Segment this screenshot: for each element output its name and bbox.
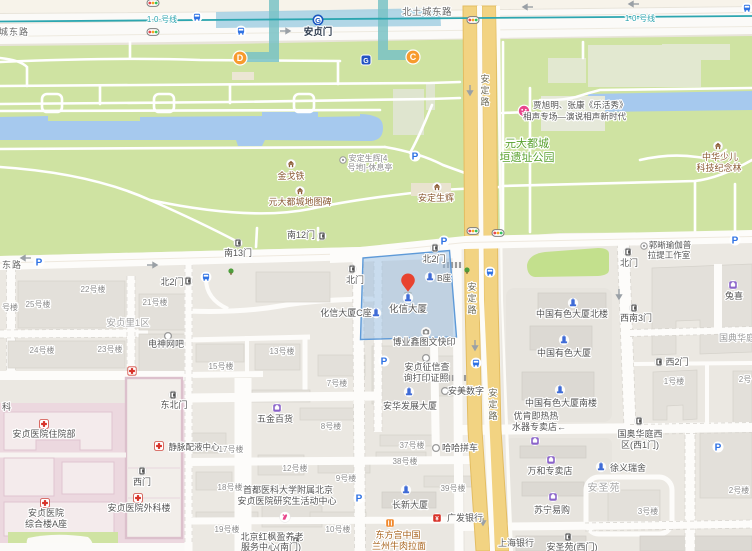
svg-text:北门: 北门 [346,274,364,285]
svg-text:安: 安 [488,387,497,398]
svg-text:化信大厦C座: 化信大厦C座 [320,307,372,318]
svg-text:安定生辉: 安定生辉 [418,192,454,203]
svg-text:¥: ¥ [435,516,439,523]
svg-text:中华少儿: 中华少儿 [702,151,738,162]
svg-text:万和专卖店: 万和专卖店 [527,465,572,476]
svg-text:22号楼: 22号楼 [81,284,106,294]
svg-text:25号楼: 25号楼 [26,299,51,309]
svg-text:国典华庭: 国典华庭 [719,332,752,343]
svg-text:博业鑫图文快印: 博业鑫图文快印 [392,336,455,347]
svg-text:37号楼: 37号楼 [400,440,425,450]
svg-text:G: G [315,16,321,25]
svg-text:化信大厦: 化信大厦 [389,303,428,315]
svg-text:15号楼: 15号楼 [209,361,234,371]
svg-text:电神网吧: 电神网吧 [148,338,184,349]
svg-text:相声专场—演说相声新时代: 相声专场—演说相声新时代 [523,111,627,122]
svg-text:北2门: 北2门 [160,276,183,287]
svg-text:定: 定 [480,85,489,96]
svg-text:B座: B座 [437,273,452,283]
svg-text:首都医科大学附属北京: 首都医科大学附属北京 [243,484,333,495]
svg-text:安: 安 [480,73,489,84]
svg-text:科技纪念林: 科技纪念林 [696,162,741,173]
svg-text:8号楼: 8号楼 [321,421,341,431]
svg-text:区(西1门): 区(西1门) [621,439,659,450]
svg-text:安圣苑: 安圣苑 [588,481,621,494]
svg-text:综合楼A座: 综合楼A座 [25,518,67,529]
svg-text:拉提工作室: 拉提工作室 [648,250,691,260]
svg-text:P: P [381,356,388,367]
svg-text:北门: 北门 [620,257,638,268]
svg-text:路: 路 [488,410,497,421]
svg-text:中国有色大厦北楼: 中国有色大厦北楼 [536,308,608,319]
svg-text:哈哈拼车: 哈哈拼车 [442,442,478,453]
svg-text:P: P [441,236,448,247]
svg-text:定: 定 [488,399,497,410]
svg-text:兰州牛肉拉面: 兰州牛肉拉面 [372,540,426,551]
svg-text:东路: 东路 [2,259,22,270]
svg-text:路: 路 [467,304,476,315]
svg-text:P: P [356,493,363,504]
svg-text:南12门: 南12门 [287,229,315,240]
svg-text:21号楼: 21号楼 [143,297,168,307]
svg-text:西南3门: 西南3门 [620,312,652,323]
svg-text:苏宁易购: 苏宁易购 [534,504,570,515]
svg-text:P: P [715,442,722,453]
svg-text:号地]-休息亭: 号地]-休息亭 [348,162,393,172]
svg-text:东北门: 东北门 [160,399,187,410]
svg-text:静脉配液中心: 静脉配液中心 [168,442,220,452]
svg-text:24号楼: 24号楼 [30,345,55,355]
svg-text:郭晰瑜伽普: 郭晰瑜伽普 [649,240,692,250]
svg-text:东方宫中国: 东方宫中国 [375,529,420,540]
svg-text:徐义瑞舍: 徐义瑞舍 [610,462,646,473]
svg-text:安定生辉[4: 安定生辉[4 [349,153,388,163]
svg-text:长新大厦: 长新大厦 [392,499,428,510]
svg-text:上海银行: 上海银行 [498,537,534,548]
svg-text:18号楼: 18号楼 [218,482,243,492]
svg-text:广发银行: 广发银行 [447,512,483,523]
svg-text:国奥华庭西: 国奥华庭西 [617,428,662,439]
svg-text:询打印证照: 询打印证照 [403,372,448,383]
svg-text:D: D [237,53,244,63]
svg-text:安华发展大厦: 安华发展大厦 [383,400,437,411]
svg-text:P: P [732,235,739,246]
svg-text:南13门: 南13门 [224,247,252,258]
svg-text:西2门: 西2门 [665,356,688,367]
svg-text:C: C [410,52,417,62]
svg-text:垣遗址公园: 垣遗址公园 [500,150,555,164]
svg-text:安贞医院研究生活动中心: 安贞医院研究生活动中心 [237,495,336,506]
svg-text:23号楼: 23号楼 [98,344,123,354]
svg-text:贾旭明、张康《乐活秀》: 贾旭明、张康《乐活秀》 [533,99,628,110]
svg-text:科: 科 [2,401,11,412]
svg-text:兔喜: 兔喜 [725,290,743,301]
svg-text:P: P [412,151,419,162]
svg-text:安贞医院: 安贞医院 [28,507,64,518]
svg-text:中国有色大厦: 中国有色大厦 [537,347,591,358]
svg-text:13号楼: 13号楼 [270,346,295,356]
svg-text:17号楼: 17号楼 [219,444,244,454]
svg-text:定: 定 [467,293,476,304]
svg-text:39号楼: 39号楼 [441,483,466,493]
svg-text:服务中心(南门): 服务中心(南门) [241,541,301,551]
svg-text:G: G [363,58,369,65]
svg-text:1-0-号线: 1-0-号线 [147,14,177,24]
svg-text:水器专卖店←: 水器专卖店← [512,421,566,432]
svg-text:19号楼: 19号楼 [215,524,240,534]
svg-text:安美数字: 安美数字 [448,385,484,396]
svg-text:西门: 西门 [133,476,151,487]
svg-text:1-0-号线: 1-0-号线 [625,13,655,23]
svg-text:10号楼: 10号楼 [326,524,351,534]
svg-text:五金百货: 五金百货 [257,413,293,424]
svg-text:元大都城: 元大都城 [505,136,549,150]
svg-text:安贞医院住院部: 安贞医院住院部 [12,428,75,439]
svg-text:9号楼: 9号楼 [336,473,356,483]
svg-text:38号楼: 38号楼 [393,456,418,466]
svg-text:金戈铁: 金戈铁 [277,170,304,181]
svg-text:号楼: 号楼 [2,302,18,312]
svg-text:路: 路 [480,96,489,107]
svg-text:7号楼: 7号楼 [327,378,347,388]
svg-text:12号楼: 12号楼 [283,463,308,473]
svg-text:安: 安 [467,281,476,292]
svg-text:安贞里1区: 安贞里1区 [106,317,150,329]
svg-text:安圣苑(西门): 安圣苑(西门) [547,541,598,551]
svg-text:北2门: 北2门 [422,253,445,264]
svg-text:城东路: 城东路 [0,26,29,37]
svg-text:优肯即热热: 优肯即热热 [513,410,558,421]
svg-text:3号楼: 3号楼 [638,506,658,516]
svg-text:2号楼: 2号楼 [729,485,749,495]
svg-text:中国有色大厦南楼: 中国有色大厦南楼 [525,397,597,408]
svg-text:安贞门: 安贞门 [304,26,333,38]
svg-text:1号楼: 1号楼 [664,376,684,386]
svg-text:2号: 2号 [739,375,751,384]
svg-text:元大都城地图碑: 元大都城地图碑 [268,196,331,207]
svg-text:安贞医院外科楼: 安贞医院外科楼 [107,502,170,513]
svg-text:北土城东路: 北土城东路 [402,6,452,18]
svg-text:P: P [36,257,43,268]
svg-text:安贞征信查: 安贞征信查 [404,361,449,372]
